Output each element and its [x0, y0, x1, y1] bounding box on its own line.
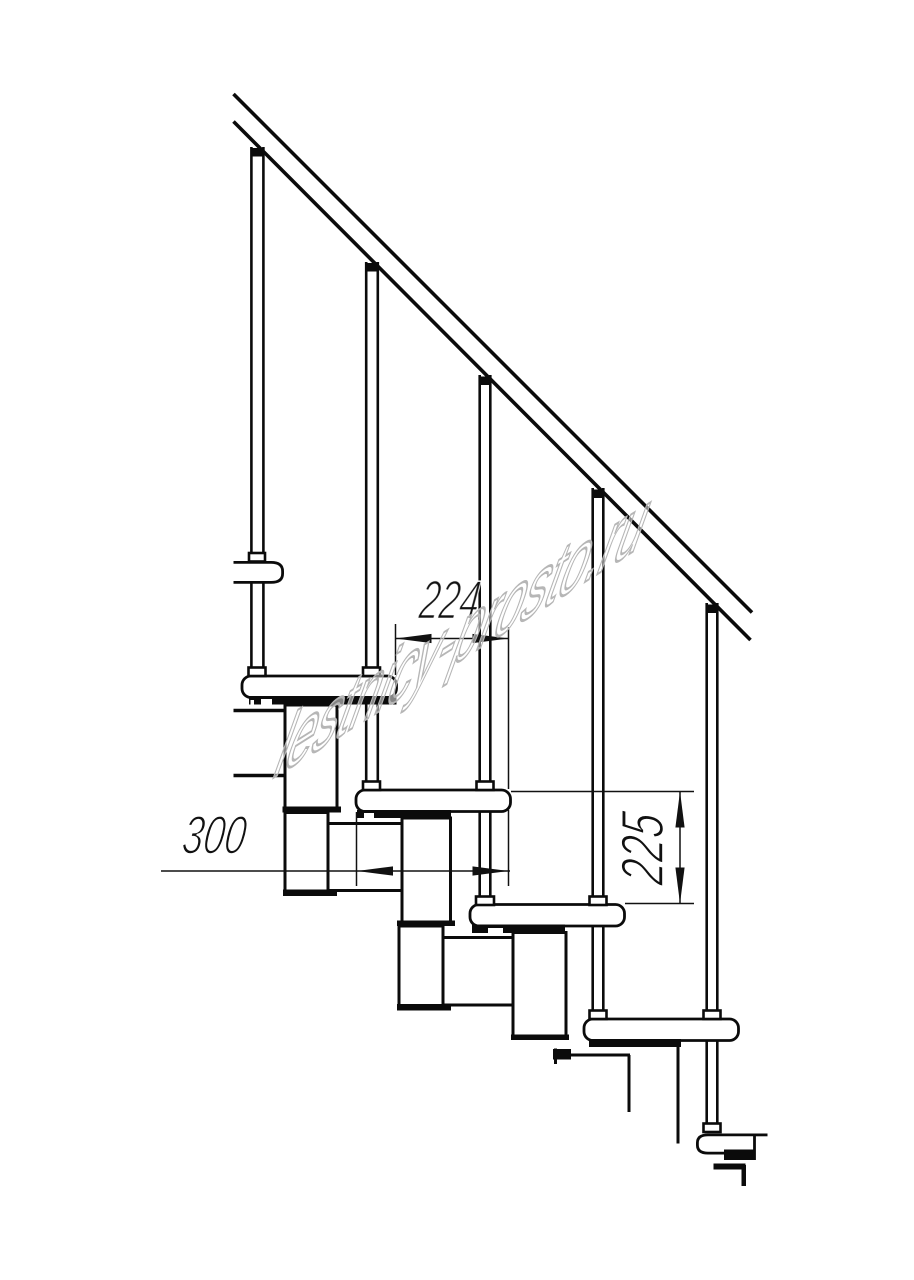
- svg-text:225: 225: [610, 808, 677, 889]
- svg-text:300: 300: [179, 805, 251, 865]
